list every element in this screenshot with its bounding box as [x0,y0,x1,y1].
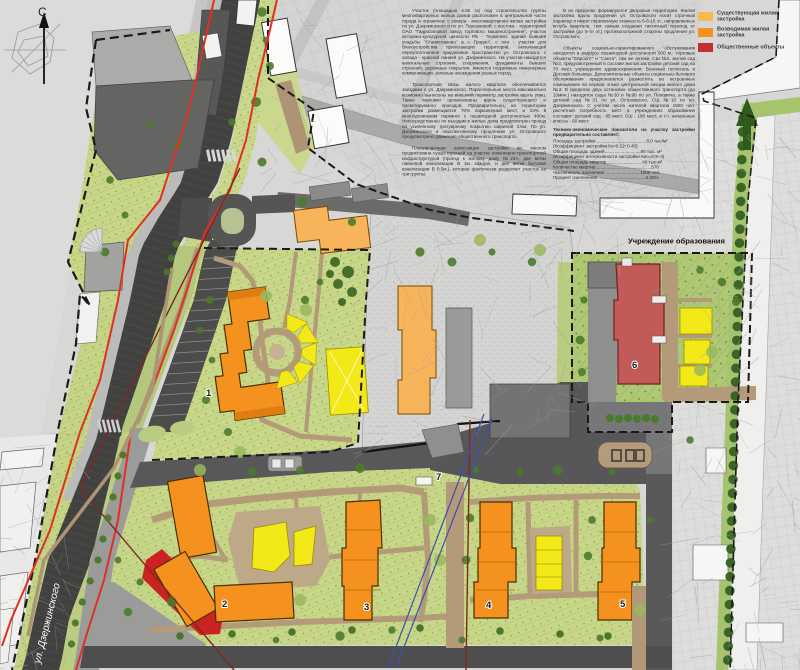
svg-text:3: 3 [364,602,369,613]
svg-text:7: 7 [436,472,441,483]
svg-text:4: 4 [486,600,492,611]
svg-text:2: 2 [222,599,227,610]
svg-text:С: С [38,5,47,19]
svg-text:5: 5 [620,599,626,610]
svg-text:6: 6 [632,360,637,371]
svg-text:1: 1 [206,388,212,399]
